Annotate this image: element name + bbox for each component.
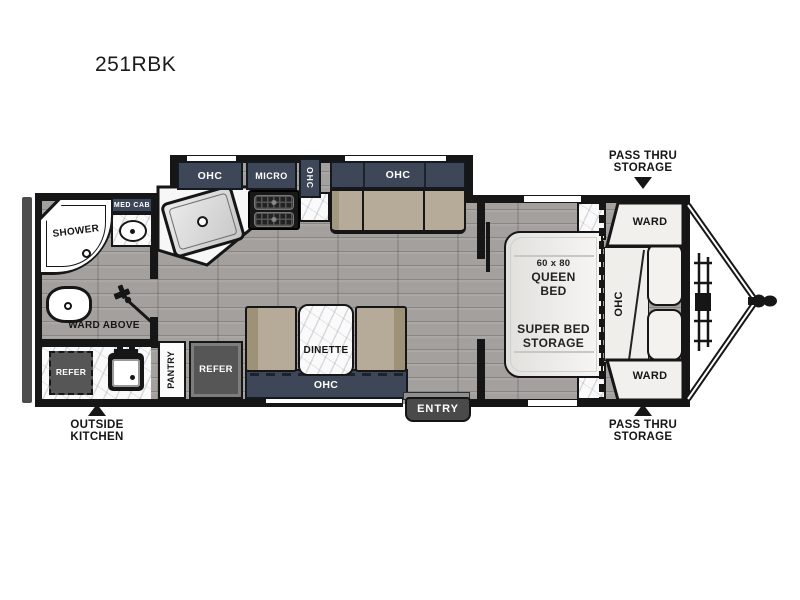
bed-head-panel-top <box>647 243 683 306</box>
stove-burner-icon <box>254 195 294 210</box>
bedroom-ohc-panel: OHC <box>604 247 649 361</box>
bed-blanket-line-top <box>514 255 594 257</box>
wall-bedroom-stub-top <box>477 201 485 259</box>
outside-sink-drain-icon <box>130 375 135 380</box>
sofa-ohc-divider-1 <box>363 163 365 187</box>
sofa-ohc: OHC <box>330 161 466 189</box>
hitch <box>686 197 780 407</box>
page-title: 251RBK <box>95 54 215 77</box>
bed-blanket-line-bottom <box>514 351 594 353</box>
sofa-cushion-divider-2 <box>423 191 425 230</box>
dinette-bench-left <box>245 306 297 372</box>
kitchen-ohc-side-label: OHC <box>305 167 315 189</box>
queen-bed: 60 x 80 QUEEN BED SUPER BED STORAGE <box>504 231 603 378</box>
shower: SHOWER <box>38 197 114 275</box>
kitchen-ohc-label: OHC <box>198 170 223 182</box>
ward-above-label: WARD ABOVE <box>53 321 155 332</box>
window-bedroom-top <box>523 195 582 203</box>
outside-kitchen-compartment: REFER <box>42 347 151 399</box>
ward-front-bottom: WARD <box>604 357 686 403</box>
outside-sink-basin <box>112 359 140 387</box>
med-cab-label: MED CAB <box>114 202 150 209</box>
refer-label: REFER <box>199 365 233 375</box>
pass-thru-bottom-label-2: STORAGE <box>593 431 693 443</box>
bath-sink-drain-icon <box>130 229 135 234</box>
bed-label-2: BED <box>506 285 601 298</box>
kitchen-ohc-side: OHC <box>299 158 321 198</box>
bedroom-ohc-label: OHC <box>614 287 626 321</box>
ward-front-top: WARD <box>604 200 686 249</box>
ward-front-bottom-label: WARD <box>618 371 682 383</box>
stove <box>248 190 300 230</box>
microwave: MICRO <box>246 161 297 190</box>
refer: REFER <box>189 341 243 399</box>
bath-vanity <box>111 213 153 247</box>
dinette-table: DINETTE <box>298 304 354 376</box>
rear-bumper <box>22 197 32 403</box>
kitchen-ohc: OHC <box>177 161 243 190</box>
wall-bedroom-stub-thin <box>486 222 490 272</box>
bed-size-label: 60 x 80 <box>506 259 601 269</box>
ward-front-top-label: WARD <box>618 217 682 229</box>
sofa-ohc-label: OHC <box>386 169 411 181</box>
outside-refer-label: REFER <box>56 368 86 377</box>
pass-thru-top-arrow-icon <box>634 177 652 189</box>
shower-drain-icon <box>82 249 91 258</box>
dinette-label: DINETTE <box>304 346 349 357</box>
sofa-ohc-divider-2 <box>424 163 426 187</box>
sofa-cushion-divider-1 <box>362 191 364 230</box>
hitch-icon <box>686 197 780 407</box>
pantry: PANTRY <box>158 341 186 399</box>
bed-storage-label-2: STORAGE <box>506 337 601 350</box>
bed-head-panel-bottom <box>647 309 683 361</box>
bedroom-ohc-profile-line <box>605 248 650 362</box>
sofa-cushions <box>330 189 466 234</box>
bed-storage-label-1: SUPER BED <box>506 323 601 336</box>
outside-kitchen-sink-icon <box>108 353 144 391</box>
pass-thru-bottom-arrow-icon <box>634 404 652 416</box>
toilet-drain-icon <box>64 302 72 310</box>
outside-kitchen-refer: REFER <box>49 351 93 395</box>
med-cab: MED CAB <box>111 197 153 213</box>
toilet <box>46 286 92 323</box>
pantry-label: PANTRY <box>167 351 177 389</box>
dinette-ohc-label: OHC <box>300 380 352 391</box>
faucet-knob-left <box>117 345 123 351</box>
entry-badge: ENTRY <box>405 397 471 422</box>
window-bedroom-bottom <box>527 399 578 407</box>
pass-thru-top-label-1: PASS THRU <box>593 150 693 162</box>
outside-kitchen-arrow-icon <box>88 404 106 416</box>
wall-bedroom-stub-bottom <box>477 339 485 401</box>
dinette-bench-right <box>355 306 407 372</box>
bed-label-1: QUEEN <box>506 271 601 284</box>
entry-label: ENTRY <box>417 404 459 416</box>
microwave-label: MICRO <box>255 171 288 181</box>
floorplan: 251RBK SHOWER MED CAB <box>0 0 800 600</box>
pass-thru-bottom-label-1: PASS THRU <box>593 419 693 431</box>
faucet-knob-right <box>129 345 135 351</box>
stove-burner-icon-2 <box>254 212 294 227</box>
outside-kitchen-label-1: OUTSIDE <box>52 419 142 431</box>
pass-thru-top-label-2: STORAGE <box>593 162 693 174</box>
outside-kitchen-label-2: KITCHEN <box>52 431 142 443</box>
